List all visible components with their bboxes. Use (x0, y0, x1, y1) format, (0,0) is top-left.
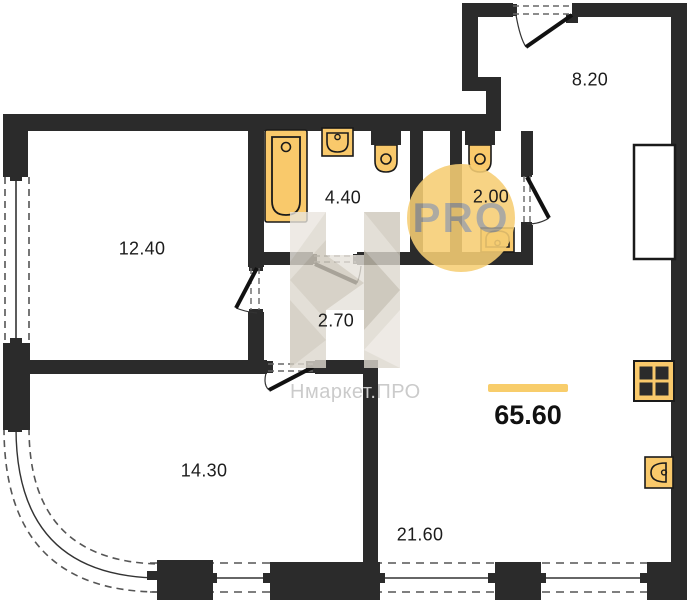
room-label-bathroom: 4.40 (325, 188, 361, 209)
room-label-hallway: 8.20 (572, 70, 608, 91)
vent-shaft (634, 145, 675, 259)
total-area: 65.60 (478, 384, 578, 431)
total-area-value: 65.60 (478, 400, 578, 431)
room-label-wc: 2.00 (473, 187, 509, 208)
floor-plan: PRO Нмаркет.ПРО 8.20 4.40 2.00 12.40 2.7… (0, 0, 691, 600)
window-ticks (8, 174, 648, 583)
watermark-logo-icon (290, 212, 400, 368)
toilet-icon (371, 128, 401, 172)
room-label-bedroom: 12.40 (119, 239, 166, 260)
bedroom-door (236, 268, 259, 313)
kitchen-sink-icon (645, 457, 673, 488)
sink-icon (322, 128, 353, 156)
wc-door (524, 176, 549, 224)
total-area-accent-bar (488, 384, 568, 392)
room-label-corridor: 2.70 (318, 311, 354, 332)
watermark-brand-text: Нмаркет.ПРО (290, 381, 421, 404)
room-label-living-kitchen: 21.60 (397, 525, 444, 546)
stove-icon (634, 361, 674, 401)
room-label-bedroom-2: 14.30 (181, 461, 228, 482)
pro-badge: PRO (407, 164, 515, 272)
entry-door (513, 6, 572, 47)
bathtub-icon (265, 130, 307, 222)
